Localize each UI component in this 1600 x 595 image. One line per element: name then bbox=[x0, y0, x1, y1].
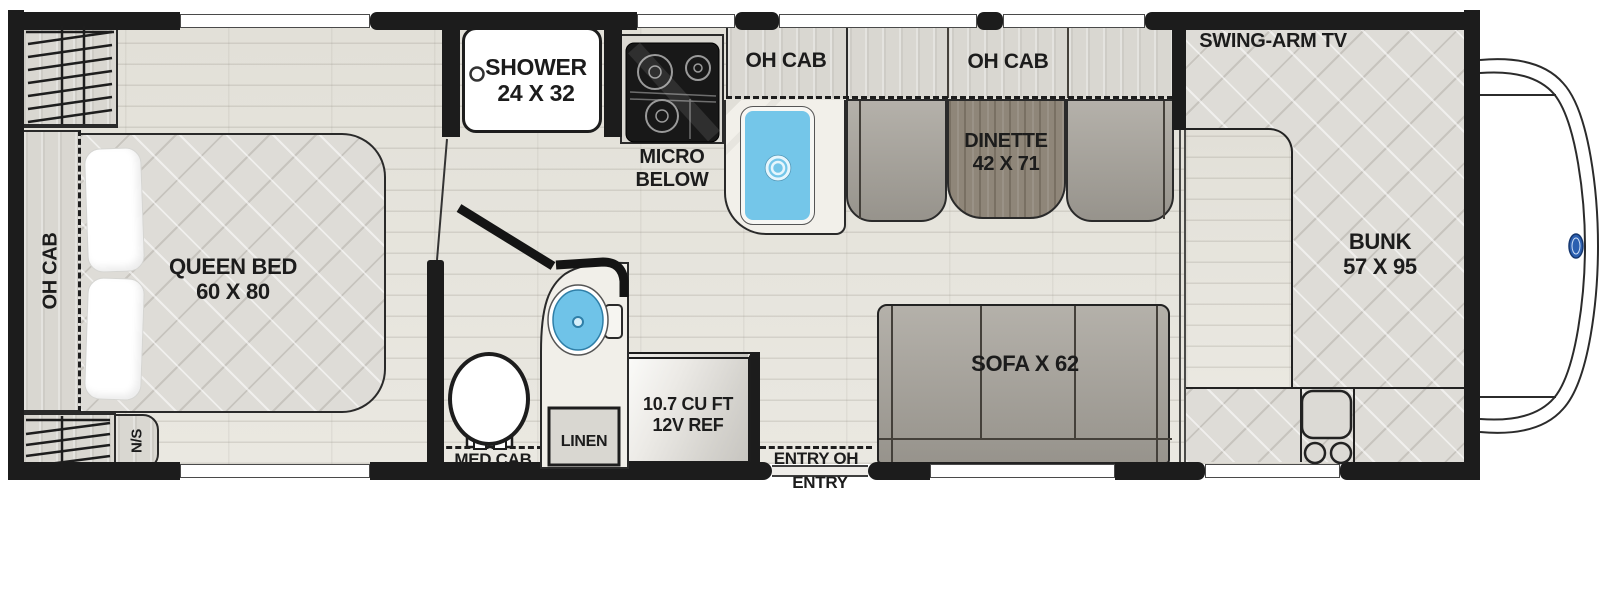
wardrobe-front bbox=[20, 22, 118, 128]
bathroom-wall-lower bbox=[427, 260, 444, 462]
med-cab-label: MED CAB bbox=[454, 450, 531, 469]
shower-wall-left bbox=[442, 14, 460, 137]
wall-bottom-segment bbox=[370, 462, 772, 480]
sofa-label: SOFA X 62 bbox=[971, 351, 1079, 376]
overhead-dashed-line bbox=[726, 96, 1173, 99]
window bbox=[637, 14, 735, 28]
dinette-label: DINETTE42 X 71 bbox=[964, 130, 1047, 176]
pillow bbox=[84, 277, 145, 401]
pillow bbox=[84, 147, 145, 273]
swing-arm-tv-label: SWING-ARM TV bbox=[1199, 30, 1347, 53]
bench-back-line bbox=[859, 101, 861, 219]
queen-bed-label: QUEEN BED60 X 80 bbox=[169, 254, 297, 304]
wall-bottom-segment bbox=[1115, 462, 1205, 480]
rv-floorplan: SHOWER24 X 32 MICROBELOW OH CAB OH CAB D… bbox=[0, 0, 1600, 595]
wall-top-segment bbox=[370, 12, 637, 30]
wall-top-segment bbox=[8, 12, 180, 30]
fridge-wall-stub bbox=[751, 352, 760, 464]
cab-inner-outline bbox=[1480, 72, 1585, 419]
wall-bottom-segment bbox=[868, 462, 930, 480]
wall-top-segment bbox=[1145, 12, 1480, 30]
sofa bbox=[877, 304, 1170, 464]
entry-label: ENTRY bbox=[792, 473, 848, 492]
cabinet-divider bbox=[1067, 20, 1069, 98]
wall-top-segment bbox=[977, 12, 1003, 30]
tv-partition-wall bbox=[1172, 16, 1186, 130]
wall-top-segment bbox=[735, 12, 779, 30]
bedroom-oh-cab-label: OH CAB bbox=[40, 232, 63, 309]
window bbox=[180, 14, 370, 28]
cabinet-divider bbox=[947, 20, 949, 98]
dinette-oh-cab-label: OH CAB bbox=[967, 50, 1048, 74]
bunk-edge-panel bbox=[1179, 130, 1186, 462]
cab-front bbox=[1480, 59, 1598, 433]
shower-wall-right bbox=[604, 14, 622, 137]
kitchen-oh-cab-label: OH CAB bbox=[745, 49, 826, 73]
kitchen-sink bbox=[741, 107, 814, 224]
bunk-label: BUNK57 X 95 bbox=[1343, 229, 1417, 279]
bunk-floor-notch bbox=[1186, 128, 1293, 389]
window bbox=[930, 464, 1115, 478]
dinette-bench-right bbox=[1066, 99, 1174, 222]
cab-outer-outline bbox=[1480, 59, 1598, 433]
exterior-wall-left bbox=[8, 10, 24, 480]
sofa-seat-line bbox=[879, 438, 1172, 440]
fridge-label: 10.7 CU FT12V REF bbox=[643, 394, 733, 435]
nightstand-label: N/S bbox=[128, 429, 145, 453]
sofa-armrest-line bbox=[891, 306, 893, 466]
window bbox=[1003, 14, 1145, 28]
window bbox=[1205, 464, 1340, 478]
bench-back-line bbox=[1163, 101, 1165, 219]
ford-badge-icon bbox=[1569, 234, 1583, 258]
wall-bottom-segment bbox=[1340, 462, 1480, 480]
bunk-strip-divider bbox=[1300, 389, 1302, 462]
exterior-wall-front bbox=[1464, 10, 1480, 480]
micro-below-label: MICROBELOW bbox=[636, 146, 709, 192]
shower-label: SHOWER24 X 32 bbox=[485, 54, 587, 106]
wall-bottom-segment bbox=[8, 462, 180, 480]
linen-label: LINEN bbox=[561, 433, 608, 451]
bunk-strip-divider bbox=[1353, 389, 1355, 462]
med-cab-overhead-line bbox=[428, 446, 543, 449]
sofa-armrest-line bbox=[1156, 306, 1158, 466]
dinette-bench-left bbox=[846, 99, 947, 222]
cooktop-counter bbox=[620, 34, 724, 144]
window bbox=[779, 14, 977, 28]
entry-oh-label: ENTRY OH bbox=[774, 449, 859, 468]
window bbox=[180, 464, 370, 478]
bunk-strip-line bbox=[1186, 387, 1466, 389]
